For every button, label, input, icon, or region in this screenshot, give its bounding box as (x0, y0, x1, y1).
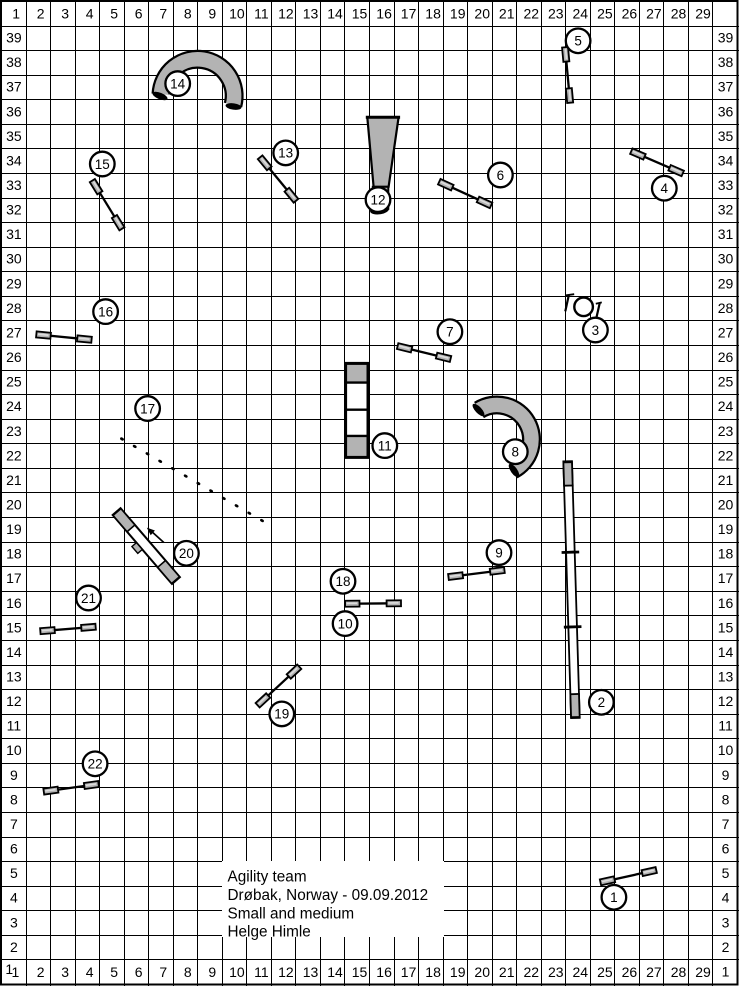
svg-text:11: 11 (254, 964, 269, 980)
svg-text:30: 30 (6, 251, 22, 267)
svg-text:16: 16 (98, 304, 113, 319)
svg-text:14: 14 (6, 644, 22, 660)
svg-text:22: 22 (524, 964, 540, 980)
svg-text:4: 4 (86, 5, 94, 21)
svg-text:13: 13 (278, 146, 293, 161)
svg-text:33: 33 (718, 177, 734, 193)
svg-text:26: 26 (718, 349, 734, 365)
svg-text:6: 6 (10, 841, 18, 857)
svg-text:13: 13 (303, 964, 319, 980)
svg-text:20: 20 (6, 497, 22, 513)
svg-text:2: 2 (37, 5, 45, 21)
svg-text:16: 16 (376, 5, 392, 21)
svg-text:31: 31 (718, 226, 734, 242)
svg-text:4: 4 (10, 890, 18, 906)
svg-text:39: 39 (6, 30, 22, 46)
svg-text:7: 7 (722, 816, 730, 832)
svg-text:12: 12 (718, 693, 734, 709)
svg-text:37: 37 (6, 79, 22, 95)
svg-text:1: 1 (610, 890, 618, 905)
svg-text:8: 8 (184, 964, 192, 980)
svg-text:39: 39 (718, 30, 734, 46)
svg-text:16: 16 (6, 595, 22, 611)
svg-text:12: 12 (278, 5, 294, 21)
svg-text:24: 24 (718, 398, 734, 414)
svg-text:28: 28 (671, 5, 687, 21)
svg-text:25: 25 (597, 5, 613, 21)
svg-text:29: 29 (6, 275, 22, 291)
svg-text:6: 6 (722, 841, 730, 857)
svg-text:25: 25 (597, 964, 613, 980)
svg-text:9: 9 (10, 767, 18, 783)
svg-text:2: 2 (722, 939, 730, 955)
svg-text:14: 14 (170, 76, 186, 91)
svg-text:19: 19 (450, 5, 466, 21)
svg-text:19: 19 (274, 707, 289, 722)
svg-text:20: 20 (474, 5, 490, 21)
svg-text:28: 28 (671, 964, 687, 980)
svg-text:12: 12 (278, 964, 294, 980)
svg-text:11: 11 (7, 718, 22, 734)
svg-text:37: 37 (718, 79, 734, 95)
svg-text:14: 14 (718, 644, 734, 660)
svg-text:14: 14 (327, 5, 343, 21)
svg-text:7: 7 (10, 816, 18, 832)
svg-text:9: 9 (208, 5, 216, 21)
svg-text:34: 34 (718, 152, 734, 168)
svg-text:9: 9 (722, 767, 730, 783)
svg-text:32: 32 (718, 202, 734, 218)
svg-text:15: 15 (718, 619, 734, 635)
svg-text:22: 22 (524, 5, 540, 21)
svg-text:31: 31 (6, 226, 22, 242)
svg-text:18: 18 (6, 546, 22, 562)
svg-text:29: 29 (695, 5, 711, 21)
svg-text:17: 17 (140, 401, 155, 416)
svg-text:3: 3 (61, 5, 69, 21)
svg-text:27: 27 (646, 5, 662, 21)
svg-text:17: 17 (401, 5, 417, 21)
svg-text:3: 3 (10, 914, 18, 930)
svg-text:8: 8 (10, 791, 18, 807)
svg-text:11: 11 (718, 718, 733, 734)
svg-text:3: 3 (592, 323, 600, 338)
svg-text:18: 18 (718, 546, 734, 562)
svg-text:10: 10 (229, 5, 245, 21)
svg-text:25: 25 (718, 374, 734, 390)
svg-text:15: 15 (352, 964, 368, 980)
svg-text:20: 20 (474, 964, 490, 980)
svg-text:38: 38 (6, 54, 22, 70)
svg-text:6: 6 (135, 5, 143, 21)
svg-text:11: 11 (254, 5, 269, 21)
svg-text:21: 21 (499, 5, 515, 21)
svg-text:22: 22 (718, 447, 734, 463)
svg-text:9: 9 (495, 545, 503, 560)
svg-text:29: 29 (695, 964, 711, 980)
svg-text:7: 7 (159, 5, 167, 21)
svg-text:5: 5 (574, 34, 582, 49)
svg-text:15: 15 (352, 5, 368, 21)
svg-text:8: 8 (512, 445, 520, 460)
svg-text:24: 24 (573, 5, 589, 21)
svg-text:27: 27 (646, 964, 662, 980)
svg-text:16: 16 (376, 964, 392, 980)
svg-text:27: 27 (6, 325, 22, 341)
svg-text:13: 13 (6, 669, 22, 685)
svg-text:26: 26 (622, 5, 638, 21)
svg-text:18: 18 (425, 5, 441, 21)
svg-text:21: 21 (718, 472, 734, 488)
svg-text:29: 29 (718, 275, 734, 291)
svg-text:12: 12 (370, 192, 385, 207)
svg-text:23: 23 (718, 423, 734, 439)
svg-text:10: 10 (229, 964, 245, 980)
svg-text:38: 38 (718, 54, 734, 70)
svg-text:1: 1 (12, 5, 20, 21)
svg-text:19: 19 (450, 964, 466, 980)
svg-text:10: 10 (718, 742, 734, 758)
svg-text:8: 8 (184, 5, 192, 21)
svg-text:15: 15 (6, 619, 22, 635)
svg-text:35: 35 (6, 128, 22, 144)
svg-text:14: 14 (327, 964, 343, 980)
svg-text:10: 10 (6, 742, 22, 758)
svg-text:13: 13 (718, 669, 734, 685)
svg-text:Small and medium: Small and medium (228, 906, 355, 923)
svg-text:2: 2 (37, 964, 45, 980)
svg-text:21: 21 (81, 591, 96, 606)
svg-text:21: 21 (6, 472, 22, 488)
svg-text:23: 23 (548, 5, 564, 21)
svg-text:7: 7 (159, 964, 167, 980)
svg-text:27: 27 (718, 325, 734, 341)
svg-text:6: 6 (497, 168, 505, 183)
svg-text:30: 30 (718, 251, 734, 267)
svg-text:28: 28 (6, 300, 22, 316)
svg-text:25: 25 (6, 374, 22, 390)
svg-text:8: 8 (722, 791, 730, 807)
svg-text:13: 13 (303, 5, 319, 21)
svg-text:5: 5 (110, 964, 118, 980)
svg-text:2: 2 (10, 939, 18, 955)
svg-text:20: 20 (179, 546, 194, 561)
svg-text:24: 24 (6, 398, 22, 414)
svg-text:24: 24 (573, 964, 589, 980)
svg-text:32: 32 (6, 202, 22, 218)
svg-text:7: 7 (446, 325, 454, 340)
svg-text:4: 4 (86, 964, 94, 980)
svg-text:17: 17 (6, 570, 22, 586)
svg-text:19: 19 (6, 521, 22, 537)
svg-text:1: 1 (722, 963, 730, 979)
svg-text:12: 12 (6, 693, 22, 709)
svg-text:4: 4 (661, 181, 669, 196)
svg-text:21: 21 (499, 964, 515, 980)
svg-text:Drøbak, Norway - 09.09.2012: Drøbak, Norway - 09.09.2012 (228, 887, 429, 904)
svg-text:6: 6 (135, 964, 143, 980)
svg-text:22: 22 (6, 447, 22, 463)
svg-text:3: 3 (61, 964, 69, 980)
svg-text:2: 2 (598, 695, 606, 710)
svg-text:36: 36 (6, 103, 22, 119)
svg-text:3: 3 (722, 914, 730, 930)
svg-text:17: 17 (718, 570, 734, 586)
svg-text:18: 18 (425, 964, 441, 980)
svg-text:28: 28 (718, 300, 734, 316)
svg-text:10: 10 (338, 616, 353, 631)
svg-text:19: 19 (718, 521, 734, 537)
svg-text:18: 18 (335, 574, 350, 589)
svg-text:23: 23 (6, 423, 22, 439)
svg-text:15: 15 (95, 157, 110, 172)
svg-text:23: 23 (548, 964, 564, 980)
svg-text:11: 11 (378, 438, 392, 453)
svg-text:34: 34 (6, 152, 22, 168)
svg-text:26: 26 (6, 349, 22, 365)
svg-text:22: 22 (88, 757, 103, 772)
svg-text:36: 36 (718, 103, 734, 119)
svg-text:20: 20 (718, 497, 734, 513)
svg-text:5: 5 (10, 865, 18, 881)
svg-text:26: 26 (622, 964, 638, 980)
svg-text:1: 1 (12, 964, 20, 980)
svg-text:33: 33 (6, 177, 22, 193)
svg-text:16: 16 (718, 595, 734, 611)
svg-text:17: 17 (401, 964, 417, 980)
svg-text:5: 5 (722, 865, 730, 881)
svg-text:Agility team: Agility team (228, 869, 307, 886)
svg-text:4: 4 (722, 890, 730, 906)
svg-text:5: 5 (110, 5, 118, 21)
svg-text:9: 9 (208, 964, 216, 980)
svg-text:35: 35 (718, 128, 734, 144)
svg-text:Helge Himle: Helge Himle (228, 924, 311, 941)
